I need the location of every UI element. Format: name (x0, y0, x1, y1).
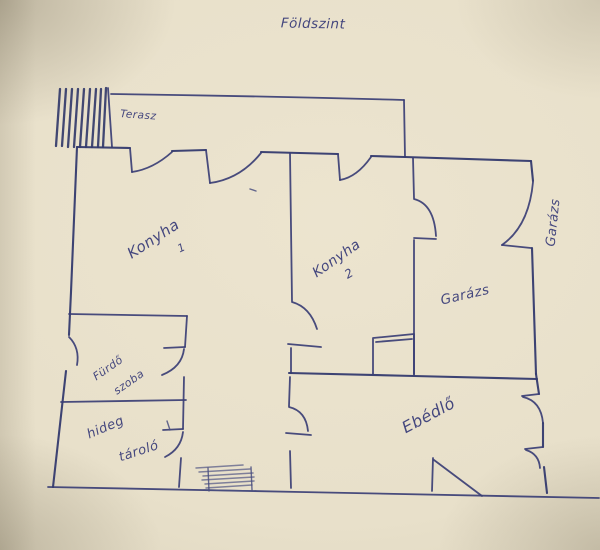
label-terasz: Terasz (120, 108, 157, 123)
terrace-stairs-hatch-icon (56, 88, 106, 147)
label-furdo-line1: Fürdő (91, 353, 126, 383)
label-furdo-line2: szoba (111, 367, 147, 397)
label-hideg-line2: tároló (117, 438, 161, 465)
floorplan-sketch: Földszint Terasz Konyha 1 Konyha 2 Garáz… (0, 0, 600, 550)
pen-marks (167, 189, 256, 430)
entry-steps-hatch-icon (196, 465, 256, 491)
label-ebedlo: Ebédlő (399, 393, 459, 437)
floorplan-photo: Földszint Terasz Konyha 1 Konyha 2 Garáz… (0, 0, 600, 550)
page-title: Földszint (281, 15, 346, 32)
interior-walls (61, 153, 537, 488)
label-garazs-side: Garázs (544, 198, 564, 247)
label-konyha2-number: 2 (342, 265, 356, 281)
outer-walls (48, 147, 599, 498)
chimney-box (373, 334, 414, 374)
label-konyha1: Konyha (124, 215, 183, 262)
terrace-outline (108, 88, 405, 157)
label-konyha1-number: 1 (175, 240, 187, 255)
label-hideg-line1: hideg (85, 413, 127, 442)
label-konyha2: Konyha (310, 236, 364, 281)
label-garazs-room: Garázs (439, 282, 491, 309)
